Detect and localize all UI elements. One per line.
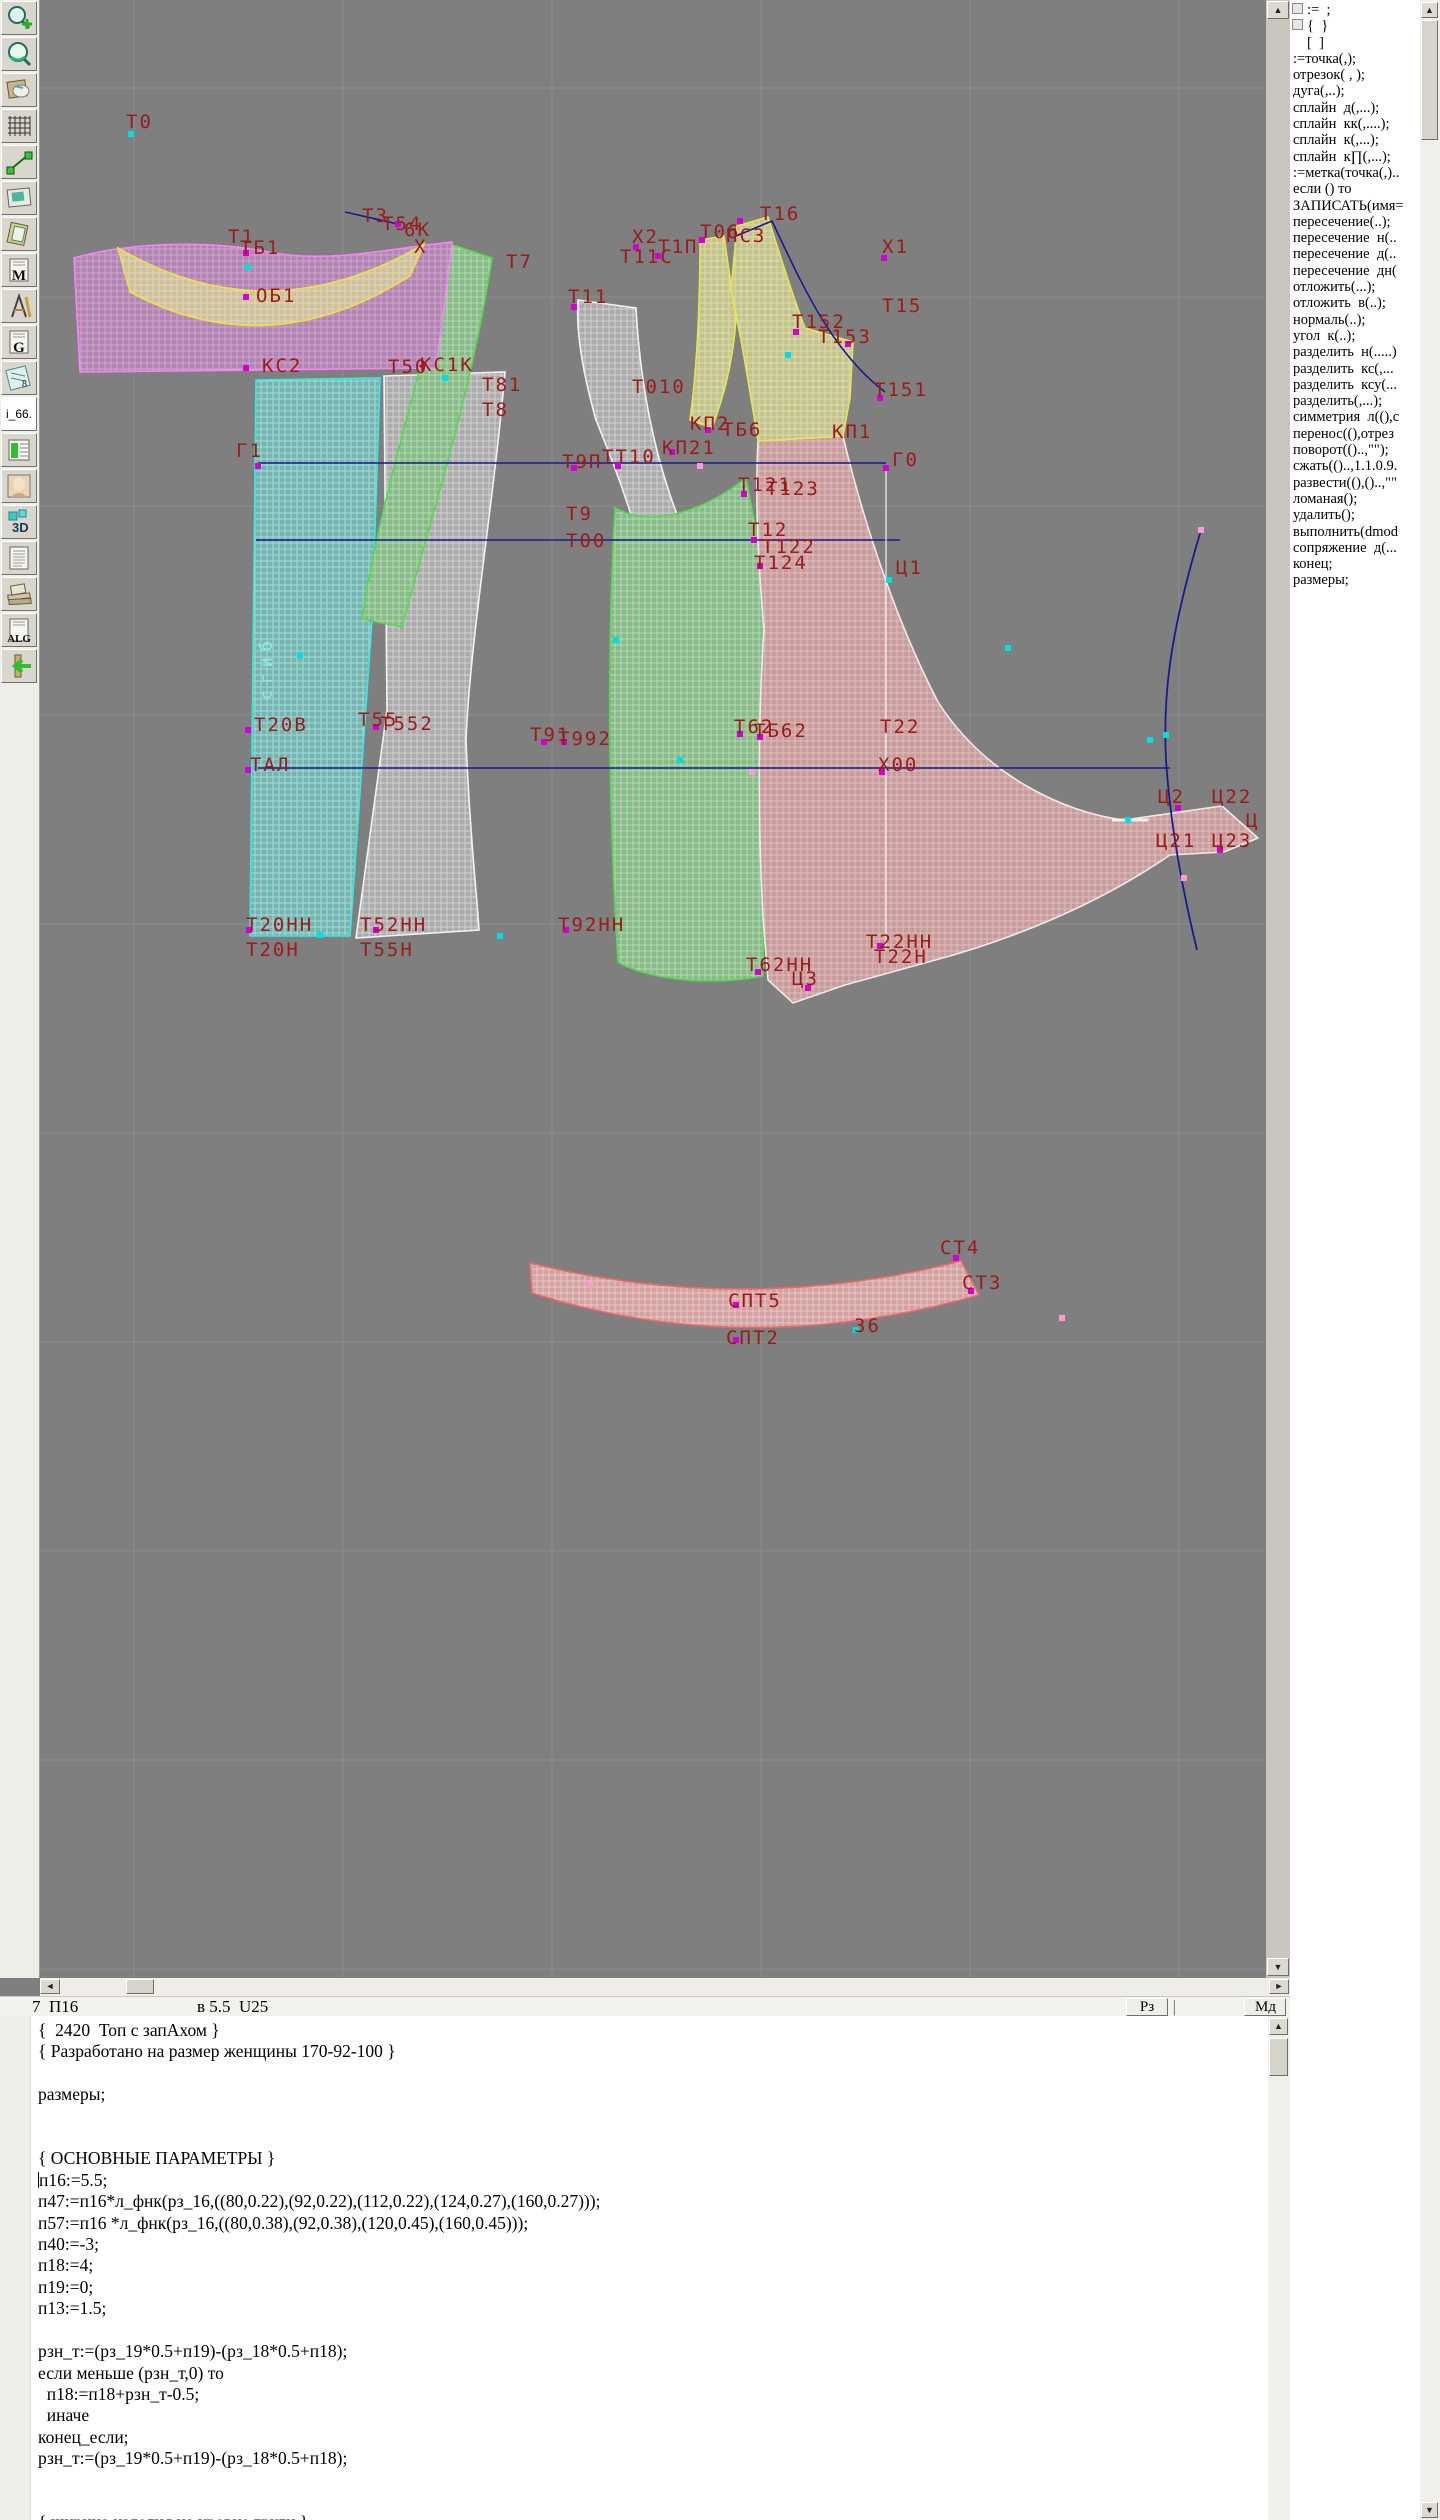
point-label: ТБ1 <box>240 237 280 259</box>
scroll-left-icon[interactable]: ◄ <box>40 1979 60 1994</box>
command-item[interactable]: пересечение н(.. <box>1293 230 1404 246</box>
command-item[interactable]: пересечение(..); <box>1293 214 1404 230</box>
model-photo-button[interactable] <box>1 469 37 503</box>
front-wrap-piece[interactable] <box>757 436 1258 1003</box>
point-label: Т81 <box>482 374 522 396</box>
point-label: КС2 <box>262 355 302 377</box>
point-label: СПТ2 <box>726 1327 780 1349</box>
point-marker[interactable] <box>245 727 251 733</box>
pattern-sheet-button[interactable] <box>1 217 37 251</box>
command-item[interactable]: :=точка(,); <box>1293 51 1404 67</box>
code-line[interactable]: { 2420 Топ с запАхом } <box>38 2020 600 2041</box>
point-label: Т9 <box>566 503 593 525</box>
sidebar-scrollbar[interactable]: ▲ ▼ <box>1420 0 1440 2520</box>
command-item[interactable]: сопряжение д(... <box>1293 540 1404 556</box>
point-label: СТ4 <box>940 1237 980 1259</box>
m-document-button[interactable]: M <box>1 253 37 287</box>
code-line[interactable]: размеры; <box>38 2084 600 2105</box>
command-item[interactable]: конец; <box>1293 556 1404 572</box>
g-document-button[interactable]: G <box>1 325 37 359</box>
command-item[interactable]: пересечение д(.. <box>1293 246 1404 262</box>
point-label: Т9П <box>562 451 602 473</box>
command-item[interactable]: угол к(..); <box>1293 328 1404 344</box>
scroll-up-icon[interactable]: ▲ <box>1421 2 1438 18</box>
command-item[interactable]: если () то <box>1293 181 1404 197</box>
point-label: Т22Н <box>874 946 928 968</box>
point-marker[interactable] <box>1125 817 1131 823</box>
command-list: := ;{ }[ ]:=точка(,);отрезок( , );дуга(,… <box>1293 2 1404 589</box>
point-label: СПТ5 <box>728 1290 782 1312</box>
command-item[interactable]: перенос((),отрез <box>1293 426 1404 442</box>
point-marker[interactable] <box>317 932 323 938</box>
point-marker[interactable] <box>1005 645 1011 651</box>
segment-icon <box>5 148 33 176</box>
point-label: Х00 <box>878 754 918 776</box>
command-item[interactable]: дуга(,..); <box>1293 83 1404 99</box>
point-label: Т11 <box>568 286 608 308</box>
command-item[interactable]: { } <box>1293 18 1404 34</box>
point-marker[interactable] <box>243 365 249 371</box>
point-label: Г1 <box>236 440 263 462</box>
point-label: Т124 <box>754 552 808 574</box>
books-icon <box>5 580 33 608</box>
command-item[interactable]: разделить(,...); <box>1293 393 1404 409</box>
point-label: Т552 <box>380 713 434 735</box>
point-label: Т52НН <box>360 914 427 936</box>
point-label: Т16 <box>760 203 800 225</box>
ruler-icon: 8 <box>5 364 33 392</box>
fold-line-label: сгиб <box>257 635 277 700</box>
editor-lines[interactable]: { 2420 Топ с запАхом }{ Разработано на р… <box>38 2020 600 2520</box>
command-item[interactable]: сплайн кк(,....); <box>1293 116 1404 132</box>
point-label: Т153 <box>818 326 872 348</box>
point-marker[interactable] <box>497 933 503 939</box>
tilted-sheet-icon <box>5 220 33 248</box>
command-item[interactable]: [ ] <box>1293 35 1404 51</box>
point-label: Г0 <box>892 449 919 471</box>
point-marker[interactable] <box>886 577 892 583</box>
point-marker[interactable] <box>883 465 889 471</box>
lined-doc-icon <box>5 544 33 572</box>
command-item[interactable]: разделить ксу(... <box>1293 377 1404 393</box>
point-label: Т20НН <box>246 914 313 936</box>
size-table-button[interactable] <box>1 433 37 467</box>
i66-label[interactable]: i_66. <box>1 397 37 431</box>
point-label: ТБ6 <box>722 419 762 441</box>
point-marker[interactable] <box>1059 1315 1065 1321</box>
command-item[interactable]: ЗАПИСАТЬ(имя= <box>1293 198 1404 214</box>
zoom-in-icon <box>5 4 33 32</box>
zoom-in-button[interactable] <box>1 1 37 35</box>
point-label: Ц22 <box>1212 786 1252 808</box>
point-label: СТ3 <box>962 1272 1002 1294</box>
drafting-tools-button[interactable] <box>1 289 37 323</box>
point-label: Т20Н <box>246 939 300 961</box>
point-label: Т00 <box>566 530 606 552</box>
command-item[interactable]: удалить(); <box>1293 507 1404 523</box>
code-line[interactable]: иначе <box>38 2405 600 2426</box>
scroll-up-icon[interactable]: ▲ <box>1267 1 1289 19</box>
shoulder-strip-yellow[interactable] <box>690 236 736 428</box>
command-item[interactable]: выполнить(dmod <box>1293 524 1404 540</box>
code-line[interactable]: п18:=4; <box>38 2255 600 2276</box>
side-seam-curve <box>1165 530 1201 950</box>
segment-tool-button[interactable] <box>1 145 37 179</box>
code-line[interactable] <box>38 2491 600 2512</box>
patterns-doc-button[interactable] <box>1 73 37 107</box>
code-line[interactable]: { ОСНОВНЫЕ ПАРАМЕТРЫ } <box>38 2148 600 2169</box>
svg-text:8: 8 <box>22 379 27 390</box>
button-separator: | <box>1173 1997 1176 2017</box>
point-label: Ц21 <box>1156 830 1196 852</box>
code-line[interactable]: п57:=п16 *л_фнк(рз_16,((80,0.38),(92,0.3… <box>38 2213 600 2234</box>
point-label: Ц23 <box>1212 830 1252 852</box>
command-item[interactable]: нормаль(..); <box>1293 312 1404 328</box>
canvas-vertical-scrollbar[interactable]: ▲ ▼ <box>1266 0 1290 1978</box>
command-item[interactable]: сплайн д(,...); <box>1293 100 1404 116</box>
point-marker[interactable] <box>677 757 683 763</box>
command-item[interactable]: поворот(()..,""); <box>1293 442 1404 458</box>
command-item[interactable]: ломаная(); <box>1293 491 1404 507</box>
grid-icon <box>5 112 33 140</box>
code-line[interactable] <box>38 2127 600 2148</box>
editor-scroll-thumb[interactable] <box>1269 2038 1288 2076</box>
editor-vertical-scrollbar[interactable]: ▲ <box>1268 2016 1290 2520</box>
ruler-document-button[interactable]: 8 <box>1 361 37 395</box>
point-label: Т123 <box>766 478 820 500</box>
zoom-view-button[interactable] <box>1 37 37 71</box>
h-scroll-thumb[interactable] <box>126 1979 154 1994</box>
command-item[interactable]: отложить(...); <box>1293 279 1404 295</box>
code-line[interactable]: если меньше (рзн_т,0) то <box>38 2363 600 2384</box>
code-line[interactable]: п18:=п18+рзн_т-0.5; <box>38 2384 600 2405</box>
pattern-sheets-icon <box>5 76 33 104</box>
point-label: Т15 <box>882 295 922 317</box>
point-marker[interactable] <box>245 264 251 270</box>
command-item[interactable]: отрезок( , ); <box>1293 67 1404 83</box>
point-label: Х1 <box>882 236 909 258</box>
point-label: КС1К <box>420 354 474 376</box>
drafting-icon <box>5 292 33 320</box>
view-3d-button[interactable]: 3D <box>1 505 37 539</box>
command-item[interactable]: разделить кс(,... <box>1293 361 1404 377</box>
point-marker[interactable] <box>613 637 619 643</box>
point-label: З6 <box>854 1315 881 1337</box>
command-item[interactable]: развести((),()..,"" <box>1293 475 1404 491</box>
exit-button[interactable] <box>1 649 37 683</box>
code-line[interactable]: рзн_т:=(рз_19*0.5+п19)-(рз_18*0.5+п18); <box>38 2341 600 2362</box>
code-line[interactable]: { Разработано на размер женщины 170-92-1… <box>38 2041 600 2062</box>
point-label: Ц2 <box>1158 786 1185 808</box>
point-label: Т010 <box>632 376 686 398</box>
code-line[interactable]: п16:=5.5; <box>38 2170 600 2191</box>
command-item[interactable]: := ; <box>1293 2 1404 18</box>
sidebar-scroll-thumb[interactable] <box>1421 20 1438 140</box>
green-table-icon <box>5 436 33 464</box>
point-label: ПС3 <box>726 225 766 247</box>
point-marker[interactable] <box>1147 737 1153 743</box>
point-label: Т1П <box>658 236 698 258</box>
point-label: КП1 <box>832 421 872 443</box>
point-marker[interactable] <box>587 1282 593 1288</box>
scroll-up-icon[interactable]: ▲ <box>1269 2018 1288 2035</box>
command-item[interactable]: размеры; <box>1293 572 1404 588</box>
point-label: Т92НН <box>558 914 625 936</box>
point-label: Т7 <box>506 251 533 273</box>
status-value-info: в 5.5 U25 <box>197 1997 268 2017</box>
program-text-editor[interactable]: { 2420 Топ с запАхом }{ Разработано на р… <box>0 2016 1268 2520</box>
code-line[interactable]: п47:=п16*л_фнк(рз_16,((80,0.22),(92,0.22… <box>38 2191 600 2212</box>
point-label: ТАЛ <box>250 754 290 776</box>
point-label: Ц <box>1246 810 1259 832</box>
editor-gutter <box>0 2016 31 2520</box>
code-line[interactable] <box>38 2106 600 2127</box>
image-view-button[interactable] <box>1 181 37 215</box>
scroll-right-icon[interactable]: ► <box>1269 1979 1289 1994</box>
point-marker[interactable] <box>255 463 261 469</box>
point-label: Т992 <box>558 728 612 750</box>
grid-table-button[interactable] <box>1 109 37 143</box>
point-label: Т8 <box>482 399 509 421</box>
text-document-button[interactable] <box>1 541 37 575</box>
text-caret <box>38 2172 39 2188</box>
point-marker[interactable] <box>1198 527 1204 533</box>
scroll-down-icon[interactable]: ▼ <box>1267 1958 1289 1976</box>
icon-letter: G <box>2 340 36 357</box>
command-list-panel: := ;{ }[ ]:=точка(,);отрезок( , );дуга(,… <box>1290 0 1420 2520</box>
exit-arrow-icon <box>5 652 33 680</box>
rz-button[interactable]: Рз <box>1126 1998 1168 2016</box>
point-marker[interactable] <box>297 652 303 658</box>
reference-books-button[interactable] <box>1 577 37 611</box>
point-label: Х <box>414 236 427 258</box>
scroll-down-icon[interactable]: ▼ <box>1421 2502 1438 2518</box>
command-item[interactable]: симметрия л((),с <box>1293 409 1404 425</box>
canvas-horizontal-scrollbar[interactable]: ◄ ► <box>40 1978 1290 1996</box>
point-label: Т151 <box>874 379 928 401</box>
point-label: ТТ10 <box>602 446 656 468</box>
photo-icon <box>5 472 33 500</box>
point-label: Т22 <box>880 716 920 738</box>
point-label: ОБ1 <box>256 285 296 307</box>
code-line[interactable]: { ширина изделия на уровне груди } <box>38 2512 600 2520</box>
cube-3d-icon: 3D <box>5 508 33 536</box>
command-item[interactable]: отложить в(..); <box>1293 295 1404 311</box>
point-label: Ц3 <box>792 968 819 990</box>
code-line[interactable] <box>38 2320 600 2341</box>
point-label: ТБ62 <box>754 720 808 742</box>
point-marker[interactable] <box>785 352 791 358</box>
point-label: КП21 <box>662 437 716 459</box>
point-marker[interactable] <box>1181 875 1187 881</box>
icon-letter: ALG <box>2 633 36 645</box>
point-label: Т55Н <box>360 939 414 961</box>
point-marker[interactable] <box>697 463 703 469</box>
code-line[interactable]: конец_если; <box>38 2427 600 2448</box>
command-item[interactable]: :=метка(точка(,).. <box>1293 165 1404 181</box>
code-line[interactable]: п19:=0; <box>38 2277 600 2298</box>
code-line[interactable]: п13:=1.5; <box>38 2298 600 2319</box>
md-button[interactable]: Мд <box>1244 1998 1286 2016</box>
point-marker[interactable] <box>749 769 755 775</box>
command-item[interactable]: сжать(()..,1.1.0.9. <box>1293 458 1404 474</box>
picture-icon <box>5 184 33 212</box>
code-line[interactable] <box>38 2470 600 2491</box>
point-label: Ц1 <box>896 557 923 579</box>
command-item[interactable]: сплайн к∏(,...); <box>1293 149 1404 165</box>
point-marker[interactable] <box>243 294 249 300</box>
algorithm-doc-button[interactable]: ALG <box>1 613 37 647</box>
code-line[interactable]: п40:=-3; <box>38 2234 600 2255</box>
command-item[interactable]: сплайн к(,...); <box>1293 132 1404 148</box>
pattern-cad-app: MG8i_66.3DALG Т0Т1ТБ1ОБ1Т3Т546КХТ7 <box>0 0 1440 2520</box>
magnifier-icon <box>5 40 33 68</box>
icon-letter: M <box>2 268 36 285</box>
status-point-info: 7 П16 <box>32 1997 78 2017</box>
drafting-canvas[interactable]: Т0Т1ТБ1ОБ1Т3Т546КХТ7Х2Т11СТ1ПТ06ПС3Т16Х1… <box>40 0 1266 1978</box>
point-label: Т20В <box>254 714 308 736</box>
point-label: Х2 <box>632 226 659 248</box>
command-item[interactable]: пересечение дн( <box>1293 263 1404 279</box>
command-item[interactable]: разделить н(.....) <box>1293 344 1404 360</box>
svg-text:3D: 3D <box>12 520 29 535</box>
point-label: Т0 <box>126 111 153 133</box>
left-toolbar: MG8i_66.3DALG <box>0 0 40 1978</box>
code-line[interactable]: рзн_т:=(рз_19*0.5+п19)-(рз_18*0.5+п18); <box>38 2448 600 2469</box>
point-marker[interactable] <box>1163 732 1169 738</box>
code-line[interactable] <box>38 2063 600 2084</box>
status-bar: 7 П16 в 5.5 U25 Рз | Мд <box>0 1996 1290 2017</box>
